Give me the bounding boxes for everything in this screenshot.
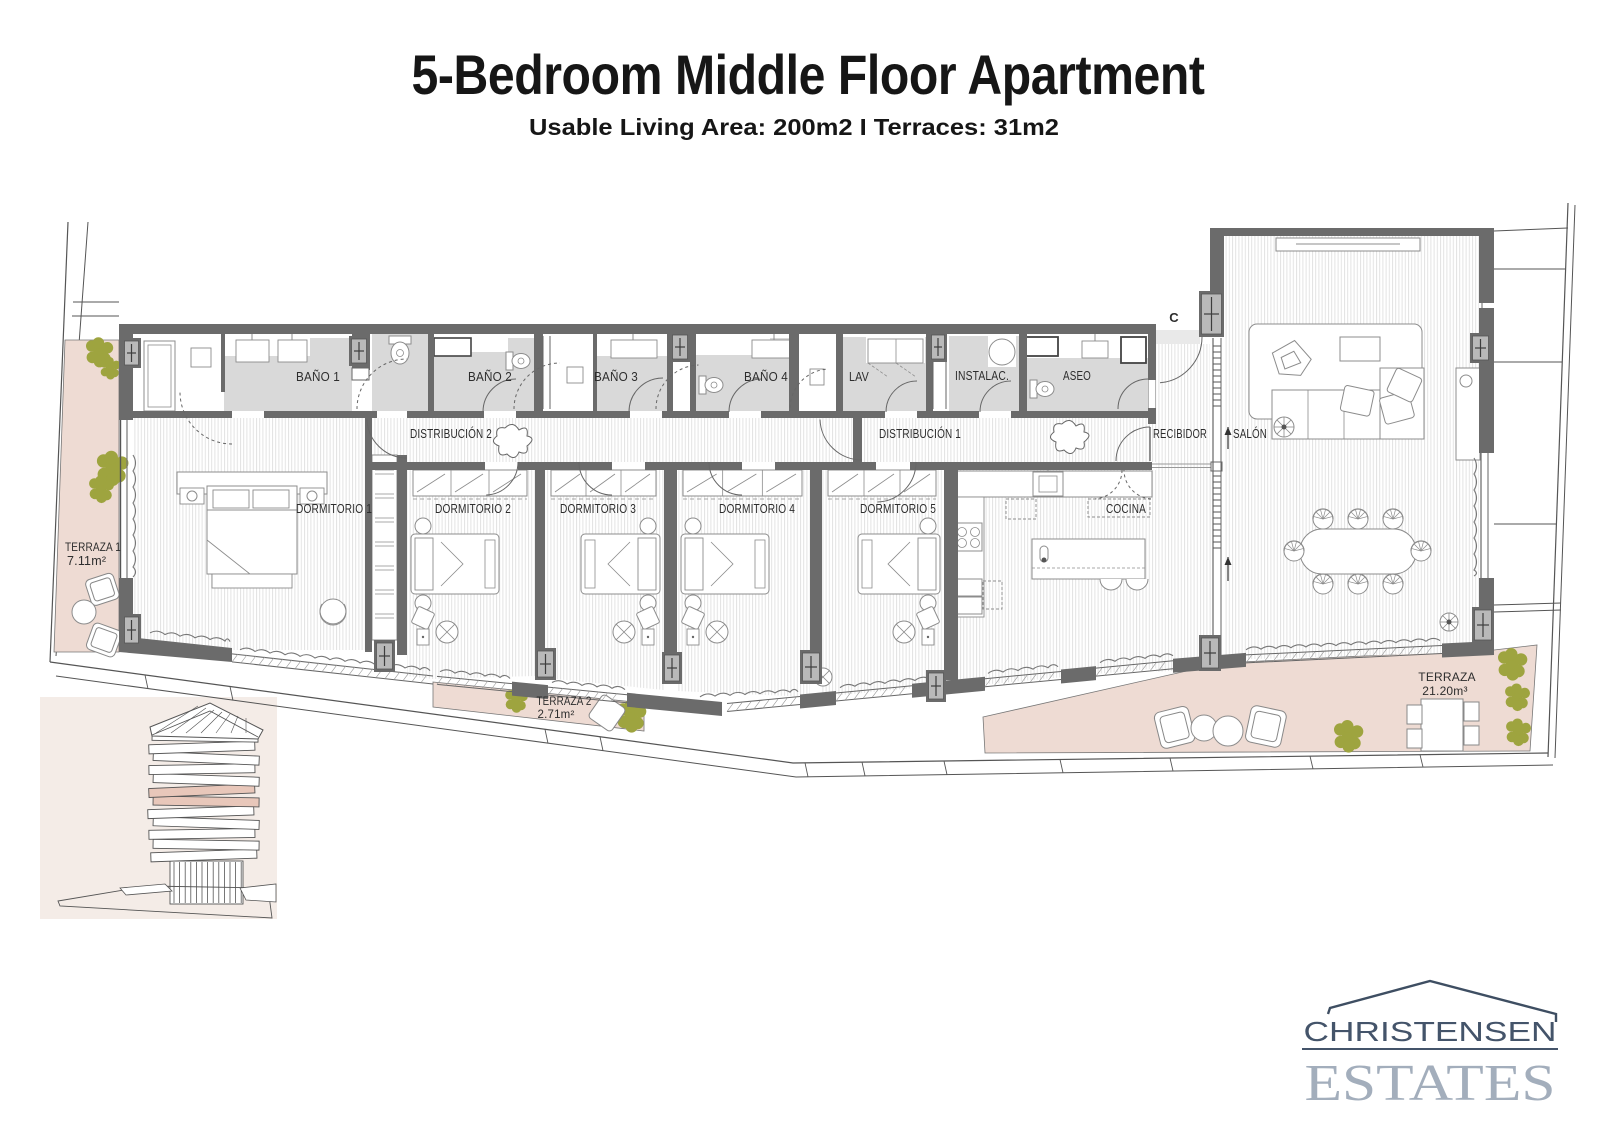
- svg-text:DORMITORIO 4: DORMITORIO 4: [719, 502, 795, 516]
- svg-text:SALÓN: SALÓN: [1233, 426, 1267, 441]
- svg-text:DISTRIBUCIÓN 2: DISTRIBUCIÓN 2: [410, 426, 492, 441]
- svg-text:TERRAZA 1: TERRAZA 1: [65, 540, 121, 554]
- svg-text:BAÑO 3: BAÑO 3: [594, 370, 638, 384]
- svg-text:TERRAZA: TERRAZA: [1418, 670, 1475, 684]
- svg-text:DISTRIBUCIÓN 1: DISTRIBUCIÓN 1: [879, 426, 961, 441]
- svg-text:7.11m²: 7.11m²: [67, 554, 106, 568]
- svg-text:RECIBIDOR: RECIBIDOR: [1153, 427, 1207, 441]
- svg-text:21.20m³: 21.20m³: [1422, 684, 1467, 698]
- svg-text:BAÑO 1: BAÑO 1: [296, 370, 340, 384]
- svg-text:ESTATES: ESTATES: [1305, 1055, 1556, 1112]
- svg-text:Usable Living Area: 200m2 I Te: Usable Living Area: 200m2 I Terraces: 31…: [529, 114, 1059, 140]
- svg-text:CHRISTENSEN: CHRISTENSEN: [1304, 1016, 1557, 1047]
- svg-text:DORMITORIO 5: DORMITORIO 5: [860, 502, 936, 516]
- svg-text:2.71m²: 2.71m²: [538, 709, 575, 721]
- svg-text:DORMITORIO 2: DORMITORIO 2: [435, 502, 511, 516]
- svg-text:INSTALAC.: INSTALAC.: [955, 369, 1009, 383]
- svg-text:DORMITORIO 1: DORMITORIO 1: [296, 502, 372, 516]
- svg-text:5-Bedroom Middle Floor Apartme: 5-Bedroom Middle Floor Apartment: [412, 43, 1205, 106]
- svg-text:BAÑO 4: BAÑO 4: [744, 370, 788, 384]
- svg-text:COCINA: COCINA: [1106, 502, 1146, 516]
- svg-text:LAV: LAV: [849, 370, 869, 384]
- svg-text:TERRAZA 2: TERRAZA 2: [537, 696, 592, 708]
- svg-text:BAÑO 2: BAÑO 2: [468, 370, 512, 384]
- svg-text:ASEO: ASEO: [1063, 369, 1091, 383]
- svg-text:DORMITORIO 3: DORMITORIO 3: [560, 502, 636, 516]
- svg-text:C: C: [1169, 310, 1179, 325]
